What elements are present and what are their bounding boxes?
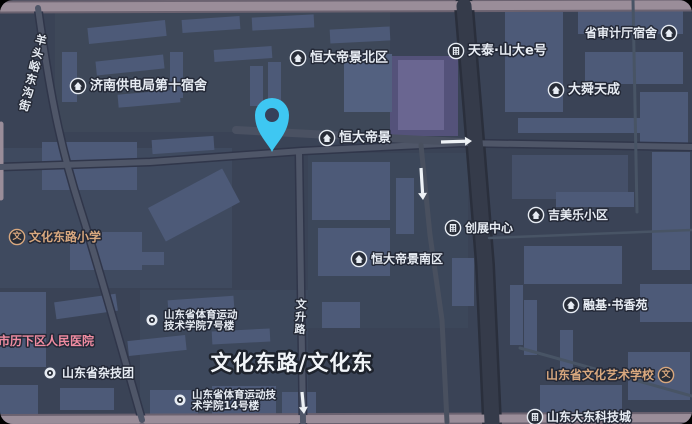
building-glyph-window xyxy=(457,51,458,53)
poi-label-text: 山东大东科技城 xyxy=(547,409,631,424)
building-glyph-window xyxy=(533,419,534,421)
building xyxy=(640,284,692,322)
school-glyph: 文 xyxy=(660,368,671,380)
building xyxy=(150,390,198,416)
building xyxy=(510,285,523,345)
poi-dot-icon-core xyxy=(49,372,51,374)
building xyxy=(518,118,682,133)
building xyxy=(62,52,77,102)
poi-label[interactable]: 恒大帝景 xyxy=(319,130,391,146)
building xyxy=(396,178,414,234)
traffic-arrow-shaft xyxy=(302,392,303,407)
building-glyph xyxy=(532,413,538,421)
poi-label-text: 吉美乐小区 xyxy=(548,207,608,222)
building xyxy=(652,196,690,270)
building xyxy=(524,246,622,284)
building-glyph xyxy=(453,47,459,55)
poi-label[interactable]: 济南供电局第十宿舍 xyxy=(70,78,208,94)
building xyxy=(60,388,114,410)
poi-label-text: 术学院14号楼 xyxy=(191,399,260,412)
poi-label[interactable]: 大舜天成 xyxy=(548,82,620,98)
building-glyph-window xyxy=(454,51,455,53)
road xyxy=(0,5,692,7)
building xyxy=(556,192,634,207)
building xyxy=(0,292,46,367)
building-glyph-window xyxy=(451,228,452,230)
building xyxy=(0,385,38,415)
building-glyph-window xyxy=(454,228,455,230)
building xyxy=(122,252,164,265)
poi-label-text: 天泰·山大e号 xyxy=(468,43,547,59)
poi-label-text: 创展中心 xyxy=(464,220,513,235)
location-pin[interactable] xyxy=(255,98,289,152)
building xyxy=(652,152,690,198)
pin-hole xyxy=(265,108,279,122)
traffic-arrow-shaft xyxy=(441,141,465,142)
building-glyph-window xyxy=(454,49,455,51)
poi-label-text: 山东省杂技团 xyxy=(62,365,134,380)
building xyxy=(312,162,390,220)
building xyxy=(322,302,360,328)
building-glyph-window xyxy=(536,419,537,421)
poi-dot-icon-core xyxy=(179,399,181,401)
building-glyph-window xyxy=(536,417,537,419)
poi-label-text: 济南供电局第十宿舍 xyxy=(90,78,208,94)
building-glyph-window xyxy=(457,53,458,55)
building xyxy=(452,258,474,306)
poi-label[interactable]: 创展中心 xyxy=(445,220,513,236)
school-glyph: 文 xyxy=(11,230,22,242)
poi-label-text: 技术学院7号楼 xyxy=(164,319,235,332)
building-glyph xyxy=(450,224,456,232)
building xyxy=(398,60,444,130)
building xyxy=(560,330,573,370)
building xyxy=(524,300,537,355)
poi-label-text: 省审计厅宿舍 xyxy=(584,25,658,40)
pin-body xyxy=(255,98,289,152)
building-glyph-window xyxy=(536,415,537,417)
building-glyph-window xyxy=(451,230,452,232)
map-canvas[interactable]: 济南供电局第十宿舍恒大帝景北区省审计厅宿舍天泰·山大e号大舜天成恒大帝景吉美乐小… xyxy=(0,0,692,424)
poi-label[interactable]: 融基·书香苑 xyxy=(563,297,647,313)
poi-label[interactable]: 吉美乐小区 xyxy=(528,207,608,223)
map-frame: 济南供电局第十宿舍恒大帝景北区省审计厅宿舍天泰·山大e号大舜天成恒大帝景吉美乐小… xyxy=(0,0,692,424)
poi-label-text: 市历下区人民医院 xyxy=(0,333,94,348)
road xyxy=(299,152,303,422)
poi-label-text: 文化东路小学 xyxy=(29,229,101,244)
building-glyph-window xyxy=(454,226,455,228)
building xyxy=(268,62,281,104)
poi-label-text: 大舜天成 xyxy=(568,82,620,98)
building xyxy=(250,66,263,106)
building-glyph-window xyxy=(533,417,534,419)
building-glyph-window xyxy=(457,49,458,51)
traffic-arrow-shaft xyxy=(421,168,423,193)
building-glyph-window xyxy=(454,230,455,232)
poi-label-text: 恒大帝景 xyxy=(339,130,391,146)
building-glyph-window xyxy=(451,226,452,228)
current-road-label: 文化东路/文化东 xyxy=(211,351,374,375)
poi-label[interactable]: 山东省杂技团 xyxy=(45,365,135,380)
poi-label-text: 融基·书香苑 xyxy=(583,297,648,312)
building-glyph-window xyxy=(533,415,534,417)
poi-dot-icon-core xyxy=(151,319,153,321)
poi-label-text: 恒大帝景南区 xyxy=(371,251,443,266)
poi-label-text: 山东省文化艺术学校 xyxy=(546,367,655,382)
poi-label-text: 恒大帝景北区 xyxy=(310,50,388,66)
poi-label[interactable]: 市历下区人民医院 xyxy=(0,333,94,348)
building-glyph-window xyxy=(454,53,455,55)
